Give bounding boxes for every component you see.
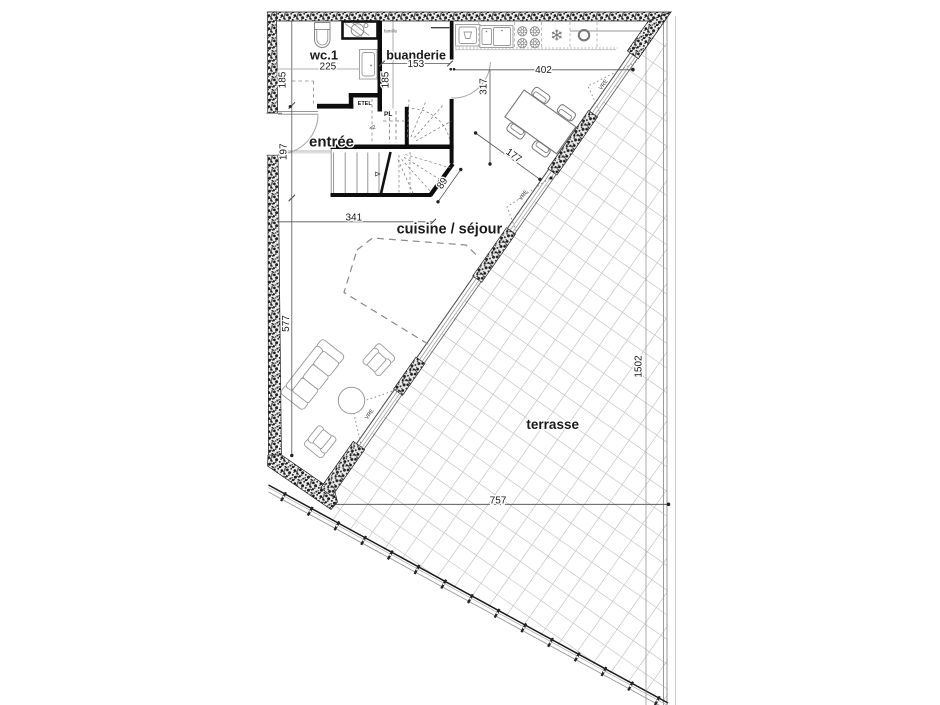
svg-text:225: 225 [320, 62, 337, 73]
svg-text:cuisine / séjour: cuisine / séjour [397, 222, 503, 238]
svg-text:famille: famille [384, 29, 398, 34]
svg-text:185: 185 [380, 71, 391, 88]
svg-text:ETEL: ETEL [358, 101, 373, 107]
svg-text:185: 185 [277, 71, 288, 88]
svg-text:153: 153 [407, 59, 424, 70]
svg-text:PL: PL [384, 111, 392, 118]
svg-text:402: 402 [535, 65, 552, 76]
svg-text:1502: 1502 [634, 355, 645, 378]
svg-text:entrée: entrée [309, 134, 354, 151]
svg-text:wc.1: wc.1 [309, 48, 338, 63]
svg-text:terrasse: terrasse [526, 417, 579, 432]
svg-text:317: 317 [478, 78, 489, 95]
svg-text:341: 341 [345, 213, 362, 224]
svg-text:757: 757 [490, 495, 507, 506]
svg-text:577: 577 [281, 315, 292, 332]
svg-text:197: 197 [278, 143, 289, 160]
